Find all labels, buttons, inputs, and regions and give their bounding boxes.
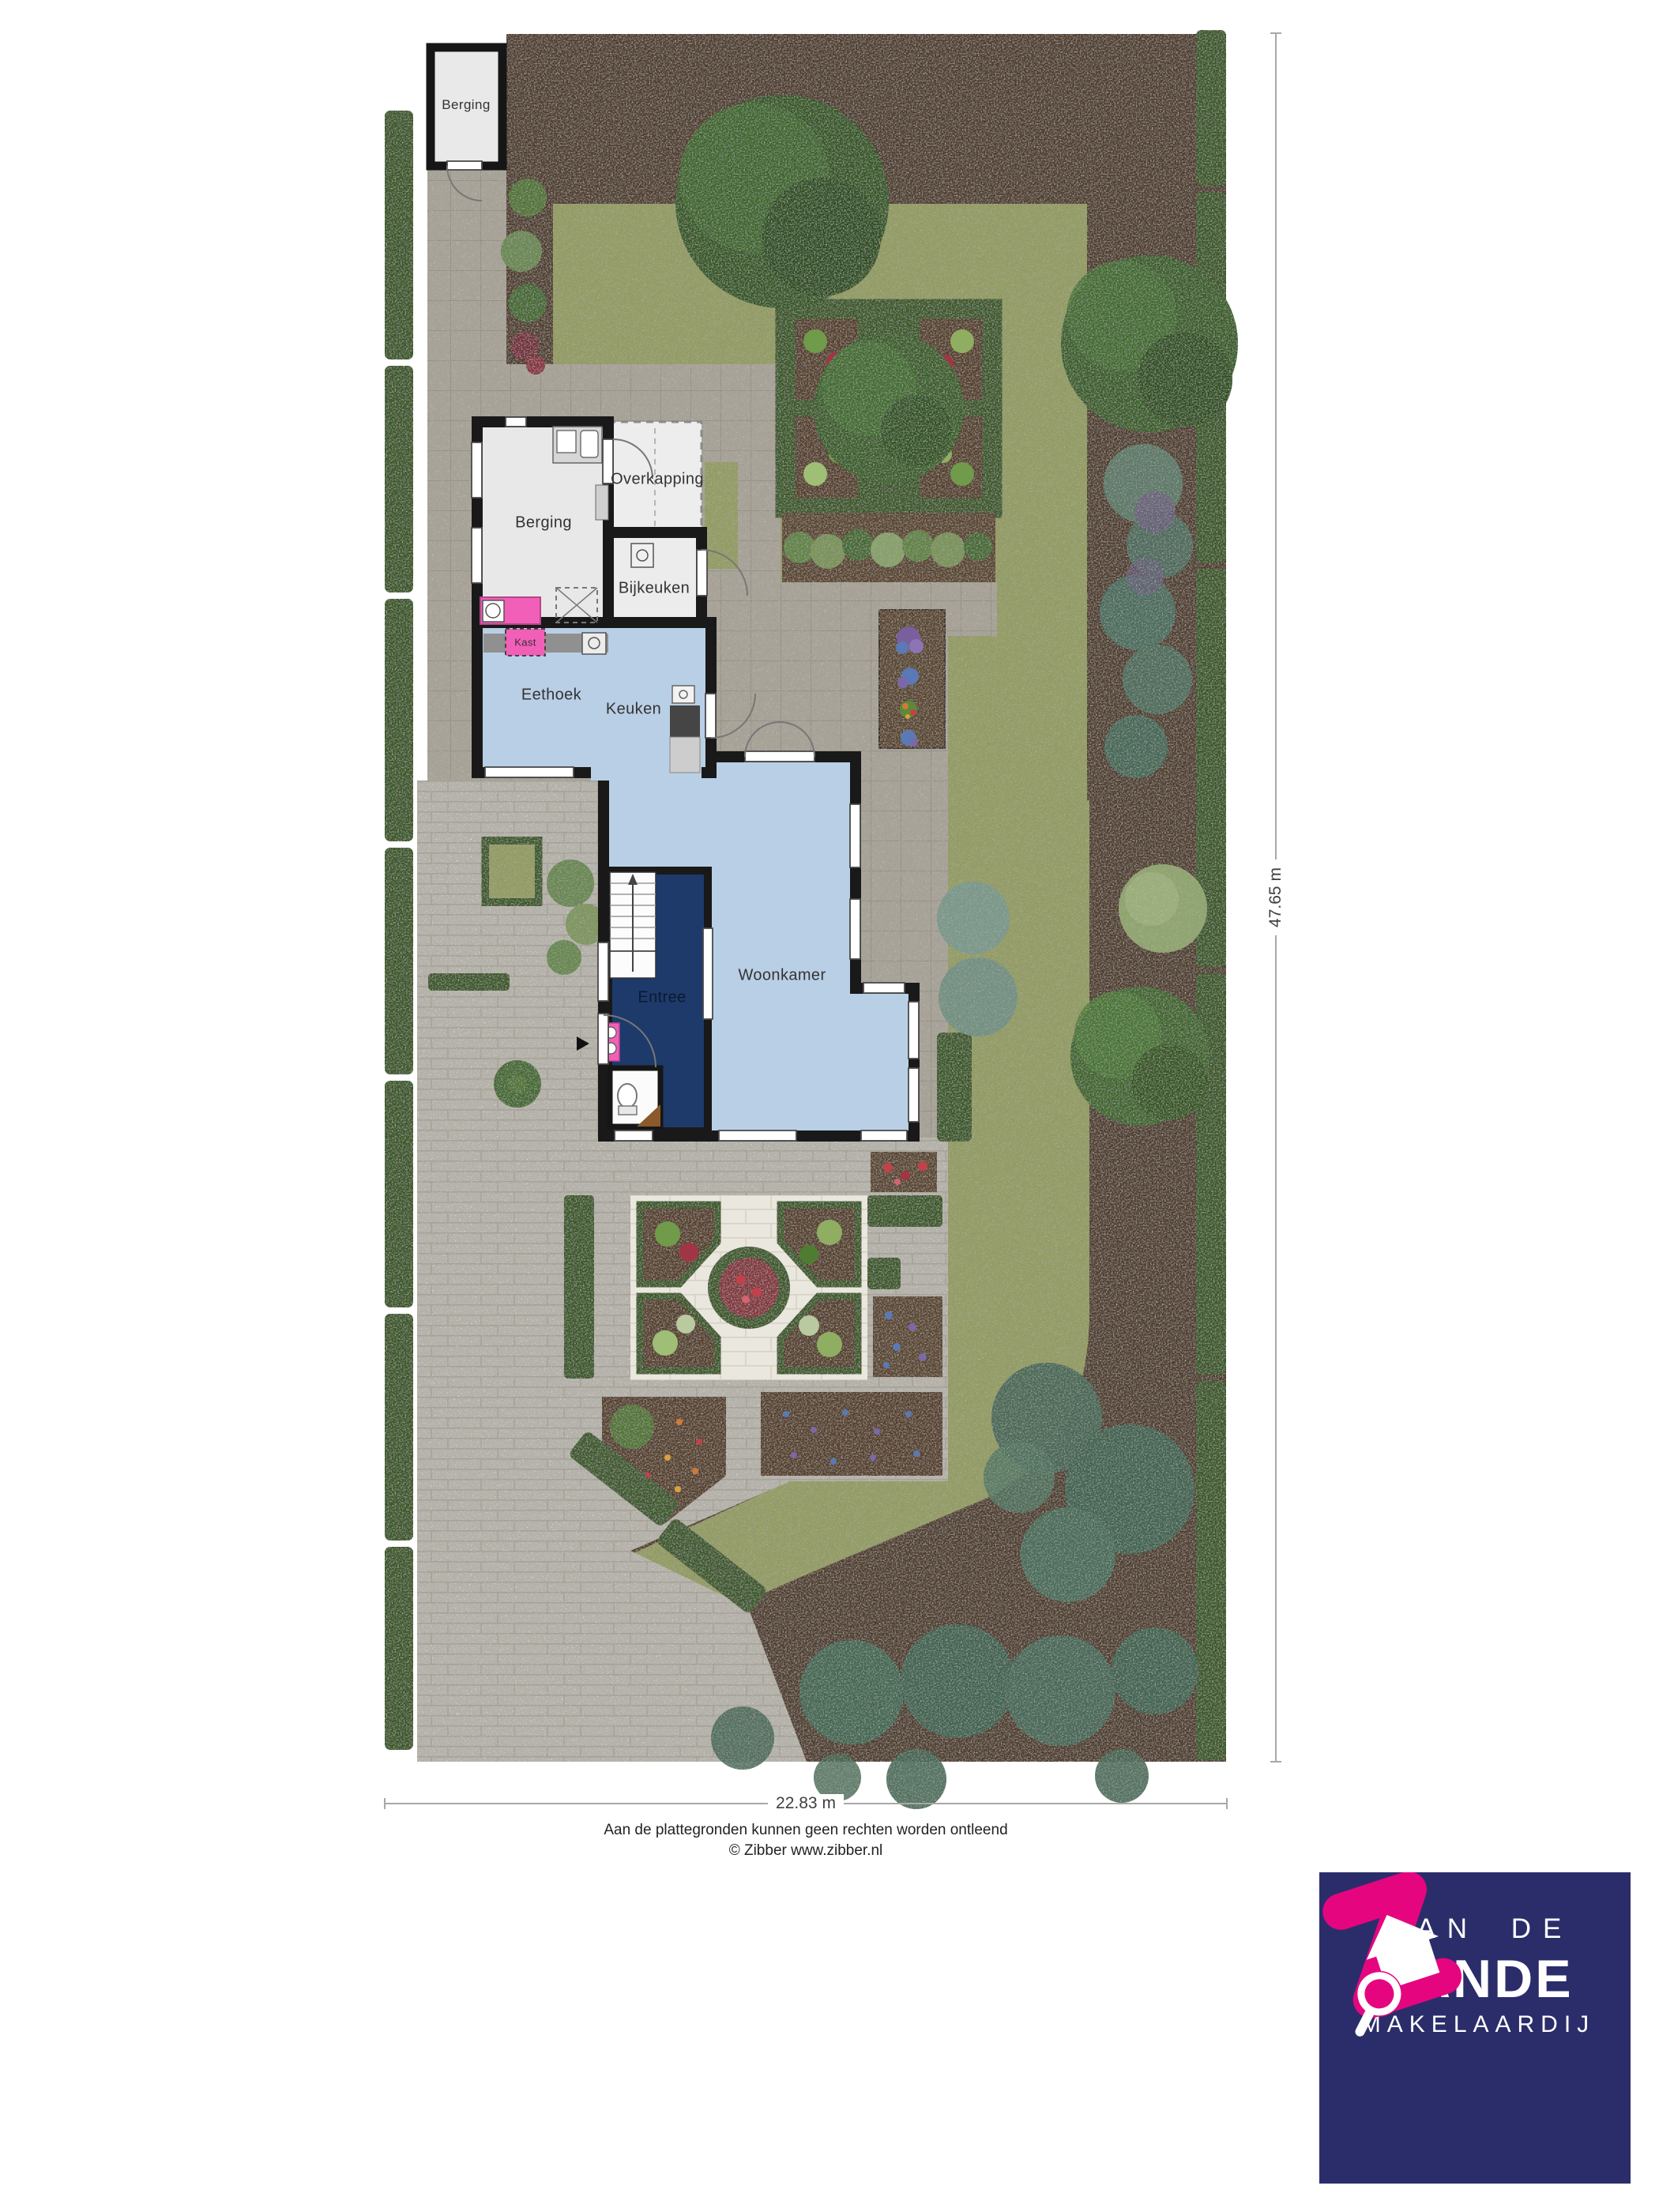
appliance-icon [631,544,653,567]
room-label-kast: Kast [514,637,536,649]
sink-icon [672,686,694,703]
room-label-woonkamer: Woonkamer [738,967,826,985]
house-magnifier-icon [1319,1872,1477,2038]
sink-icon [557,431,576,453]
room-label-berging: Berging [515,514,572,532]
raised-flower-bed [879,610,945,748]
room-label-shed-berging: Berging [442,97,490,113]
toilet-icon [618,1084,637,1108]
room-bijkeuken [608,532,702,623]
lawn-strip-overkapping [705,462,738,569]
room-label-bijkeuken: Bijkeuken [619,580,690,598]
room-label-keuken: Keuken [606,701,661,719]
bijkeuken-fixtures [631,544,653,567]
room-label-entree: Entree [638,989,686,1007]
oven-icon [582,633,606,654]
dimension-depth-label: 47.65 m [1266,860,1285,935]
left-hedge [385,111,413,1750]
site-plan-canvas: Berging Berging Overkapping Bijkeuken Ka… [0,0,1659,2212]
toilet-room [610,1068,660,1127]
room-label-eethoek: Eethoek [521,687,581,705]
disclaimer-text: Aan de plattegronden kunnen geen rechten… [411,1822,1201,1839]
agency-logo: VAN DE ZANDE MAKELAARDIJ [1319,1872,1631,2184]
staircase [610,872,656,978]
dimension-width-label: 22.83 m [768,1794,844,1813]
room-label-overkapping: Overkapping [611,471,704,489]
copyright-text: © Zibber www.zibber.nl [411,1842,1201,1860]
